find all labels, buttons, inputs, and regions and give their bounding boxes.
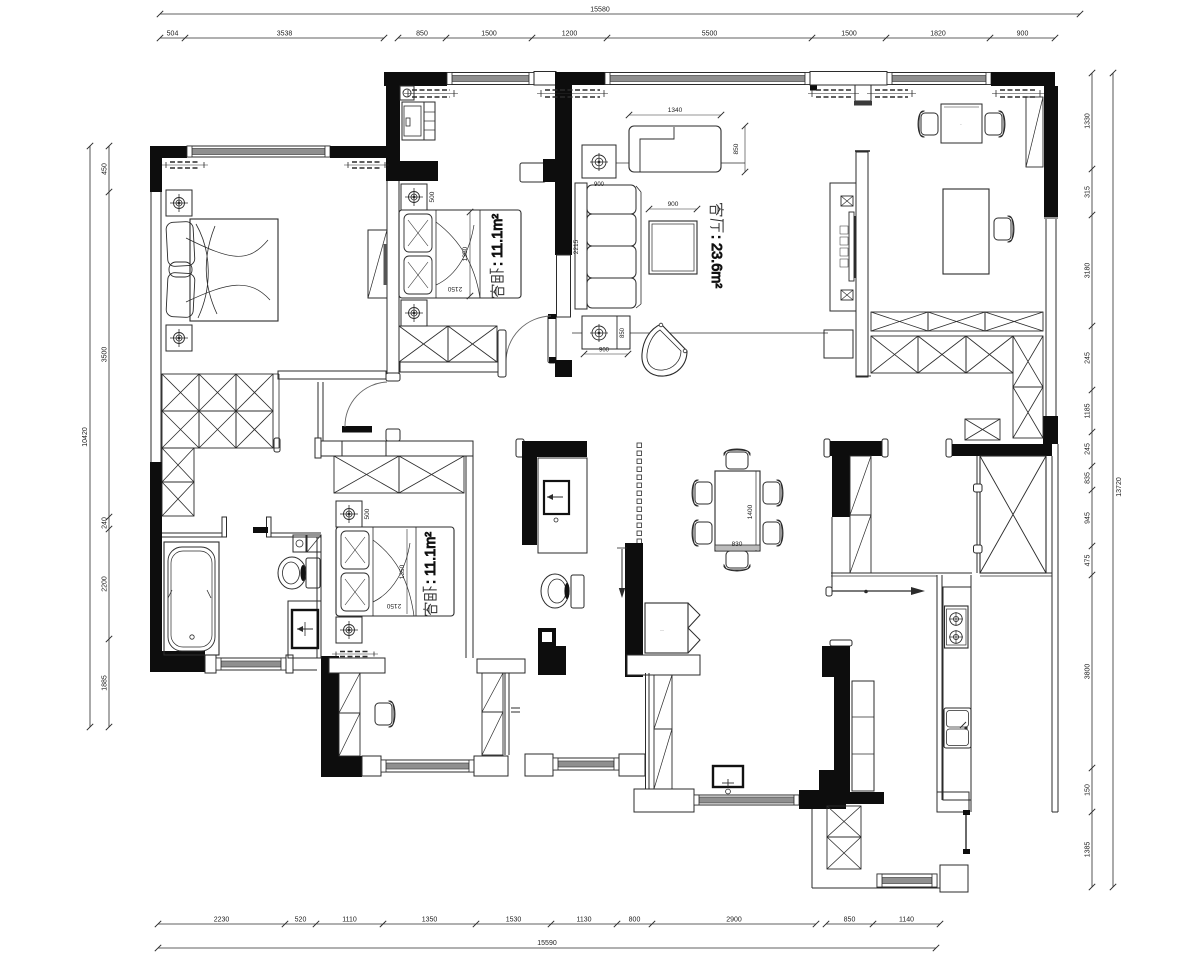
svg-text:3800: 3800 bbox=[1085, 664, 1092, 680]
svg-text:1500: 1500 bbox=[481, 31, 497, 38]
svg-text:15590: 15590 bbox=[537, 940, 557, 947]
svg-text:1130: 1130 bbox=[576, 917, 591, 924]
svg-text:2230: 2230 bbox=[214, 917, 230, 924]
svg-text:150: 150 bbox=[1085, 784, 1092, 796]
svg-text:1350: 1350 bbox=[462, 246, 469, 261]
svg-text:2150: 2150 bbox=[386, 602, 401, 609]
svg-text:850: 850 bbox=[620, 327, 626, 338]
svg-text:245: 245 bbox=[1085, 443, 1092, 455]
svg-text:1200: 1200 bbox=[562, 31, 578, 38]
svg-text:504: 504 bbox=[167, 31, 179, 38]
svg-text:1500: 1500 bbox=[841, 31, 857, 38]
svg-text:850: 850 bbox=[844, 917, 856, 924]
svg-text:3180: 3180 bbox=[1085, 263, 1092, 279]
svg-text:2215: 2215 bbox=[573, 239, 580, 254]
svg-text:800: 800 bbox=[629, 917, 641, 924]
svg-text:··: ·· bbox=[660, 628, 664, 634]
svg-text:3538: 3538 bbox=[277, 31, 293, 38]
svg-text:850: 850 bbox=[733, 143, 740, 154]
svg-text:1185: 1185 bbox=[1085, 403, 1092, 418]
svg-text:900: 900 bbox=[599, 348, 610, 354]
svg-text:3500: 3500 bbox=[102, 347, 109, 363]
svg-text:1820: 1820 bbox=[930, 31, 946, 38]
svg-text:315: 315 bbox=[1085, 186, 1092, 198]
svg-text:520: 520 bbox=[295, 917, 307, 924]
svg-text:475: 475 bbox=[1085, 555, 1092, 567]
svg-text:1385: 1385 bbox=[1085, 842, 1092, 858]
svg-text:900: 900 bbox=[1017, 31, 1029, 38]
svg-text:1350: 1350 bbox=[422, 917, 438, 924]
svg-text:850: 850 bbox=[416, 31, 428, 38]
svg-text:: 11.1m²: : 11.1m² bbox=[423, 532, 439, 584]
svg-text:450: 450 bbox=[102, 163, 109, 175]
svg-text:245: 245 bbox=[1085, 352, 1092, 364]
svg-text:10420: 10420 bbox=[82, 427, 89, 447]
svg-text:15580: 15580 bbox=[590, 7, 610, 14]
svg-text:2150: 2150 bbox=[447, 285, 462, 292]
svg-text:500: 500 bbox=[364, 508, 371, 519]
svg-text:1140: 1140 bbox=[899, 917, 914, 924]
svg-text:1530: 1530 bbox=[506, 917, 522, 924]
svg-text:2200: 2200 bbox=[102, 576, 109, 592]
svg-text:2900: 2900 bbox=[726, 917, 742, 924]
svg-text:5500: 5500 bbox=[702, 31, 718, 38]
svg-text:830: 830 bbox=[732, 541, 743, 548]
svg-text:: 23.6m²: : 23.6m² bbox=[708, 235, 724, 288]
svg-text:835: 835 bbox=[1085, 472, 1092, 484]
svg-text:500: 500 bbox=[429, 191, 436, 202]
svg-text:1110: 1110 bbox=[342, 917, 357, 924]
svg-text:13720: 13720 bbox=[1116, 477, 1123, 497]
svg-text:900: 900 bbox=[668, 201, 679, 208]
svg-text:240: 240 bbox=[102, 517, 109, 529]
svg-text:1340: 1340 bbox=[668, 107, 683, 114]
svg-text:1400: 1400 bbox=[747, 504, 754, 519]
svg-text:1885: 1885 bbox=[102, 675, 109, 691]
svg-text:: 11.1m²: : 11.1m² bbox=[490, 214, 506, 266]
svg-text:945: 945 bbox=[1085, 512, 1092, 524]
svg-text:1350: 1350 bbox=[399, 564, 406, 579]
svg-text:1330: 1330 bbox=[1085, 113, 1092, 129]
